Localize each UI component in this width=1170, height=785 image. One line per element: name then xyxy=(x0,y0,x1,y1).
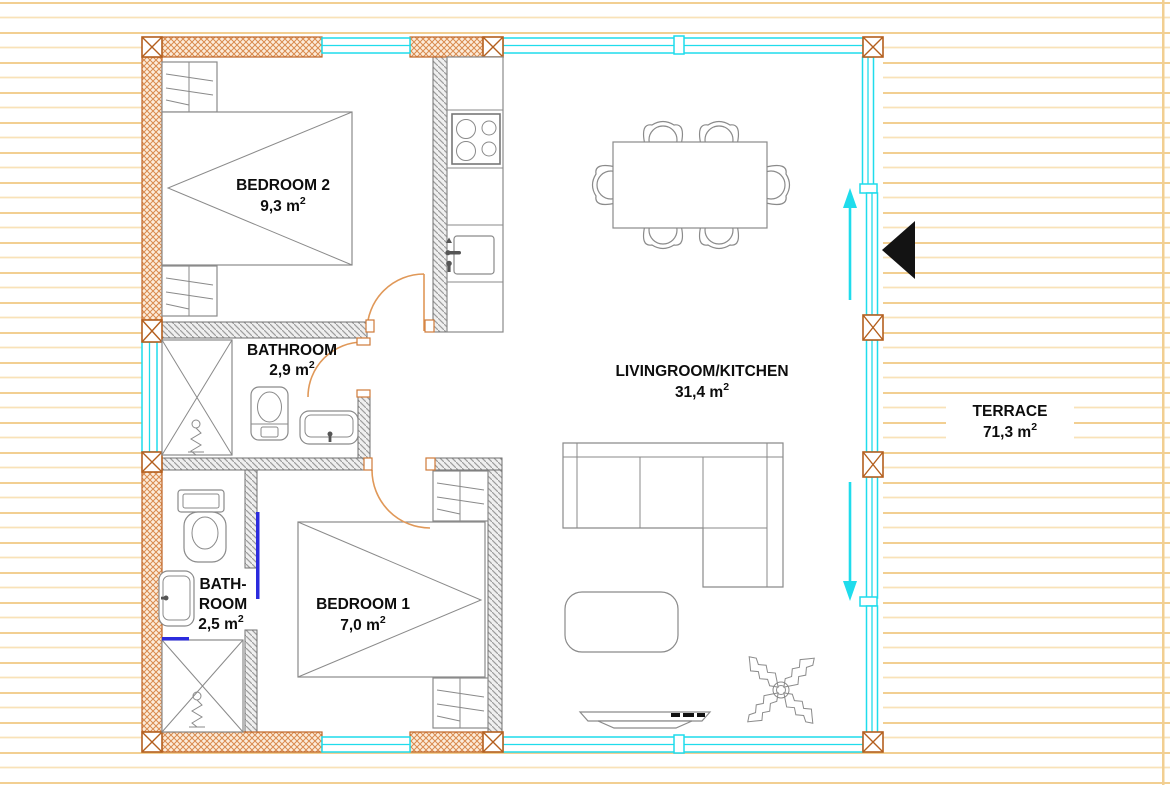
shower xyxy=(162,640,243,732)
bathroom2-label-line2: ROOM xyxy=(199,596,247,613)
stove-cooktop xyxy=(452,114,500,164)
bathroom1-label: BATHROOM xyxy=(247,342,337,359)
kitchen-counter xyxy=(445,57,503,332)
glass-wall-bottom xyxy=(503,735,863,753)
shower xyxy=(162,340,232,455)
window-left xyxy=(142,342,157,452)
top-wall-mid xyxy=(410,37,485,57)
column xyxy=(483,37,503,57)
page-right-border xyxy=(1162,0,1165,785)
toilet xyxy=(178,490,226,562)
window-top xyxy=(322,38,410,53)
column xyxy=(863,452,883,477)
sink xyxy=(159,571,194,626)
column xyxy=(142,732,162,752)
column xyxy=(483,732,503,752)
column xyxy=(142,452,162,472)
bedroom2-label: BEDROOM 2 xyxy=(236,177,330,194)
terrace-area: 71,3 m2 xyxy=(983,421,1037,441)
floor-plan-drawing: BEDROOM 2 9,3 m2 BATHROOM 2,9 m2 BATH- R… xyxy=(0,0,1170,785)
closet xyxy=(162,266,217,316)
sink xyxy=(300,411,358,444)
closet xyxy=(162,62,217,112)
column xyxy=(863,37,883,57)
glass-wall-top xyxy=(503,36,863,54)
bathroom2-right-wall-upper xyxy=(245,470,257,568)
wardrobe xyxy=(433,678,488,728)
bathroom2-area: 2,5 m2 xyxy=(198,613,244,633)
bathroom1-bottom-wall xyxy=(162,458,370,470)
bathroom1-area: 2,9 m2 xyxy=(269,359,315,379)
bathroom2-label-line1: BATH- xyxy=(199,576,246,593)
bottom-wall-left xyxy=(160,732,322,752)
coffee-table xyxy=(565,592,678,652)
toilet xyxy=(251,387,288,440)
bathroom1-right-wall xyxy=(358,395,370,458)
bedroom2-area: 9,3 m2 xyxy=(260,195,306,215)
bottom-wall-mid xyxy=(410,732,485,752)
terrace-label: TERRACE xyxy=(973,403,1048,420)
column xyxy=(142,320,162,342)
bathroom2-right-wall-lower xyxy=(245,630,257,732)
bedroom2-bathroom-wall xyxy=(162,322,367,338)
bathroom2-sliding-door-marker xyxy=(256,512,260,599)
bedroom1-label: BEDROOM 1 xyxy=(316,596,410,613)
top-wall-left xyxy=(160,37,322,57)
bedroom1-area: 7,0 m2 xyxy=(340,614,386,634)
wardrobe xyxy=(433,471,488,521)
bathroom2-shower-door-marker xyxy=(162,637,189,641)
column xyxy=(863,315,883,340)
kitchen-wall xyxy=(433,57,447,332)
livingroom-label: LIVINGROOM/KITCHEN xyxy=(615,363,788,380)
bedroom1-right-wall xyxy=(488,470,502,732)
window-bottom xyxy=(322,737,410,752)
column xyxy=(863,732,883,752)
livingroom-area: 31,4 m2 xyxy=(675,381,729,401)
column xyxy=(142,37,162,57)
left-wall-upper xyxy=(142,57,162,320)
bedroom1-top-wall xyxy=(430,458,502,470)
dining-table xyxy=(613,142,767,228)
floor-plan-page: BEDROOM 2 9,3 m2 BATHROOM 2,9 m2 BATH- R… xyxy=(0,0,1170,785)
